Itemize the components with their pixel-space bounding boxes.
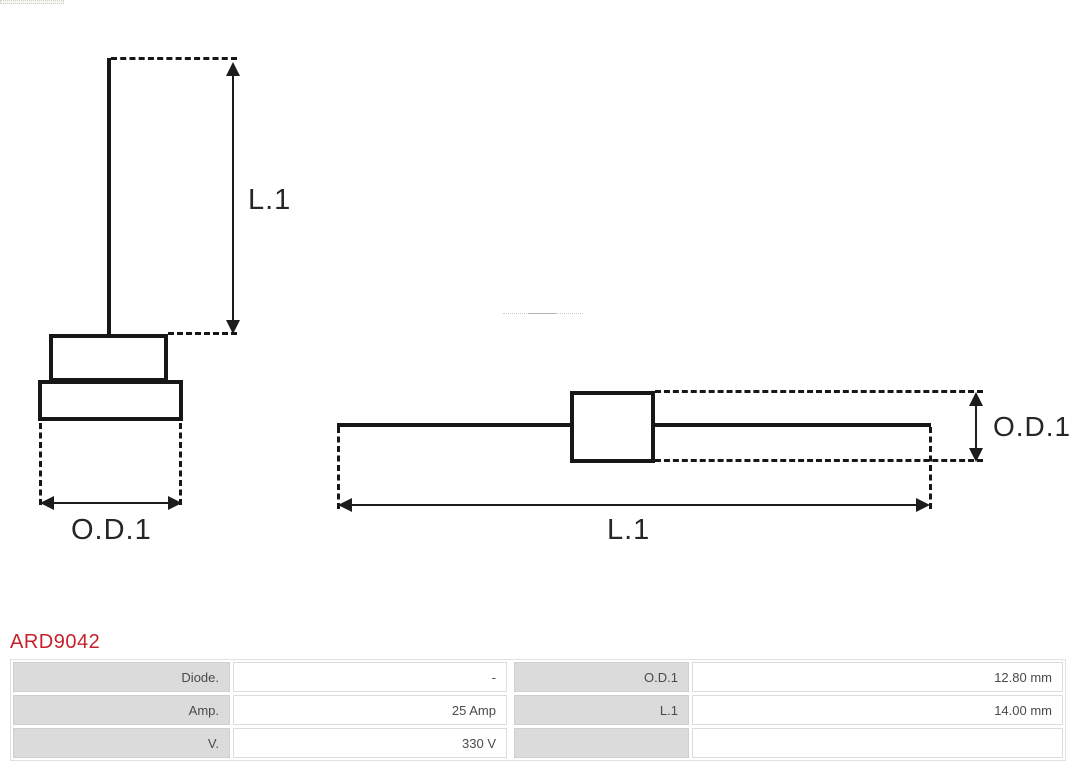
front-body-upper — [49, 334, 168, 382]
side-length-projection-right — [929, 427, 932, 509]
side-length-dimension-arrow — [338, 498, 930, 512]
table-row: Diode. - O.D.1 12.80 mm — [13, 662, 1063, 692]
dimension-line — [349, 504, 919, 506]
spec-value-od1: 12.80 mm — [692, 662, 1063, 692]
front-top-extension-line — [111, 57, 237, 60]
dimension-line — [975, 403, 977, 451]
spec-label-voltage: V. — [13, 728, 230, 758]
spec-label-od1: O.D.1 — [514, 662, 689, 692]
dimension-line — [232, 73, 234, 323]
front-diameter-dimension-arrow — [40, 496, 182, 510]
side-diameter-projection-top — [655, 390, 983, 393]
front-body-lower — [38, 380, 183, 421]
side-length-label: L.1 — [607, 514, 650, 547]
table-row: V. 330 V — [13, 728, 1063, 758]
side-diameter-label: O.D.1 — [993, 411, 1071, 443]
spec-label-diode: Diode. — [13, 662, 230, 692]
front-lead-wire — [107, 58, 111, 334]
spec-label-amp: Amp. — [13, 695, 230, 725]
watermark-artifact-center — [528, 313, 556, 314]
side-lead-left — [337, 423, 570, 427]
arrow-right-icon — [916, 498, 930, 512]
front-length-label: L.1 — [248, 184, 291, 217]
arrow-down-icon — [226, 320, 240, 334]
spec-value-empty — [692, 728, 1063, 758]
side-diameter-dimension-arrow — [969, 392, 983, 462]
dimension-line — [51, 502, 171, 504]
front-diameter-projection-right — [179, 423, 182, 505]
arrow-right-icon — [168, 496, 182, 510]
spec-value-l1: 14.00 mm — [692, 695, 1063, 725]
spec-value-diode: - — [233, 662, 507, 692]
side-body — [570, 391, 655, 463]
arrow-down-icon — [969, 448, 983, 462]
front-length-dimension-arrow — [226, 62, 240, 334]
side-length-projection-left — [337, 427, 340, 509]
table-row: Amp. 25 Amp L.1 14.00 mm — [13, 695, 1063, 725]
spec-table: Diode. - O.D.1 12.80 mm Amp. 25 Amp L.1 … — [10, 659, 1066, 761]
page-corner-artifact — [0, 0, 64, 4]
spec-label-l1: L.1 — [514, 695, 689, 725]
product-code-heading: ARD9042 — [10, 631, 100, 654]
side-diameter-projection-bottom — [655, 459, 983, 462]
spec-label-empty — [514, 728, 689, 758]
front-diameter-label: O.D.1 — [71, 514, 152, 547]
product-drawing-page: L.1 O.D.1 O.D.1 — [0, 0, 1080, 766]
side-lead-right — [655, 423, 931, 427]
spec-value-amp: 25 Amp — [233, 695, 507, 725]
front-diameter-projection-left — [39, 423, 42, 505]
spec-value-voltage: 330 V — [233, 728, 507, 758]
